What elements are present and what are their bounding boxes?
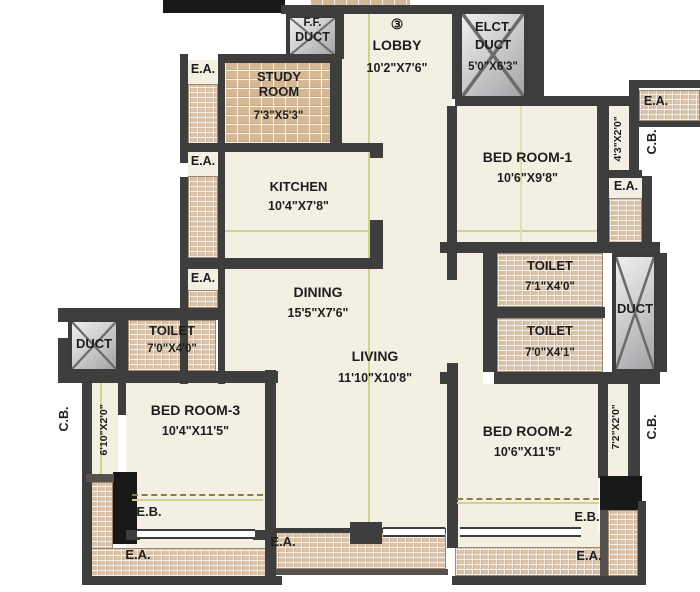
toilet-right-top-label: TOILET	[497, 259, 603, 274]
ledge-top-right-dims: 4'3"X2'0"	[613, 109, 625, 169]
wall-segment	[440, 242, 660, 253]
wall-segment	[276, 569, 448, 575]
dashed-line	[132, 494, 263, 496]
ea-label: E.A.	[611, 179, 641, 193]
wall-segment	[58, 308, 218, 320]
eb-label: E.B.	[128, 505, 170, 520]
duct-right-label: DUCT	[606, 302, 664, 317]
bed-room-2-label: BED ROOM-2	[457, 424, 598, 440]
study-room-label: STUDY ROOM	[240, 70, 318, 99]
dining-label: DINING	[248, 285, 388, 301]
grid-line-bed1	[457, 230, 598, 232]
ea-label: E.A.	[641, 94, 671, 108]
cb-label: C.B.	[645, 120, 659, 164]
grid-line-vertical-center	[368, 13, 370, 528]
wall-segment	[330, 54, 342, 144]
ea-label: E.A.	[566, 549, 612, 564]
toilet-right-bottom-label: TOILET	[497, 324, 603, 339]
wall-segment	[163, 0, 285, 13]
wall-segment	[629, 80, 639, 178]
toilet-left-dims: 7'0"X4'0"	[128, 343, 216, 356]
wall-segment	[281, 5, 544, 14]
cb-label: C.B.	[57, 397, 71, 441]
toilet-left-label: TOILET	[128, 324, 216, 339]
toilet-right-top-dims: 7'1"X4'0"	[497, 281, 603, 294]
wall-segment	[350, 522, 382, 544]
ff-duct-label-line1: F.F.	[286, 17, 339, 30]
kitchen-label: KITCHEN	[225, 180, 372, 195]
passage-floor	[380, 115, 447, 275]
wall-segment	[638, 501, 646, 585]
bed-room-1-dims: 10'6"X9'8"	[457, 171, 598, 185]
unit-number: ③	[342, 17, 452, 33]
ledge-left-dims: 6'10"X2'0"	[99, 400, 111, 460]
wall-segment	[218, 54, 342, 63]
wall-segment	[182, 258, 376, 269]
ea-label: E.A.	[188, 154, 218, 168]
window	[460, 527, 581, 537]
wall-segment	[528, 9, 544, 102]
bed-room-2-dims: 10'6"X11'5"	[457, 445, 598, 459]
wall-segment	[452, 576, 642, 585]
dashed-line	[457, 498, 599, 500]
window	[383, 527, 445, 537]
bed-room-1-label: BED ROOM-1	[457, 150, 598, 166]
ea-strip3-tiles	[188, 290, 218, 308]
ea-label: E.A.	[188, 62, 218, 76]
wall-segment	[182, 143, 382, 152]
elct-duct-label-line1: ELCT.	[458, 20, 528, 35]
toilet-right-bottom-dims: 7'0"X4'1"	[497, 347, 603, 360]
living-dims: 11'10"X10'8"	[300, 371, 450, 385]
floor-plan: ③ LOBBY 10'2"X7'6" F.F. DUCT ELCT. DUCT …	[0, 0, 700, 592]
wall-segment	[447, 106, 457, 280]
ea-strip2-tiles	[188, 176, 218, 258]
kitchen-dims: 10'4"X7'8"	[225, 199, 372, 213]
wall-segment	[632, 80, 700, 88]
ff-duct-label-line2: DUCT	[278, 30, 347, 44]
elct-duct-label-line2: DUCT	[458, 38, 528, 53]
cb-label: C.B.	[645, 405, 659, 449]
study-room-dims: 7'3"X5'3"	[225, 110, 332, 123]
wall-segment	[605, 170, 642, 178]
wall-segment	[118, 381, 126, 415]
ea-label: E.A.	[188, 271, 218, 285]
wall-segment	[600, 476, 642, 510]
wall-segment	[483, 307, 605, 318]
ea-label: E.A.	[260, 535, 306, 550]
duct-left-label: DUCT	[62, 337, 126, 352]
ea-label: E.A.	[112, 548, 164, 563]
wall-opening	[180, 163, 188, 177]
living-floor	[276, 383, 447, 532]
lobby-dims: 10'2"X7'6"	[342, 61, 452, 75]
lobby-label: LOBBY	[342, 38, 452, 54]
wall-segment	[370, 143, 383, 158]
wall-segment	[82, 576, 282, 585]
wall-segment	[628, 380, 640, 478]
elct-duct-dims: 5'0"X6'3"	[455, 61, 531, 74]
wall-segment	[86, 474, 114, 482]
bed-room-3-dims: 10'4"X11'5"	[126, 424, 265, 438]
grid-line-kitchen	[225, 230, 372, 232]
wall-segment	[455, 96, 639, 106]
grid-line	[457, 502, 599, 504]
ledge-bottom-right-dims: 7'2"X2'0"	[611, 397, 623, 457]
grid-line	[132, 499, 263, 501]
wall-segment	[82, 381, 92, 585]
bed-room-3-label: BED ROOM-3	[126, 403, 265, 419]
wall-segment	[218, 54, 225, 384]
wall-segment	[598, 384, 608, 478]
balcony-right-vertical-tiles	[608, 510, 638, 576]
ea-strip1-tiles	[188, 84, 218, 144]
dining-dims: 15'5"X7'6"	[248, 306, 388, 320]
wall-opening	[58, 322, 68, 338]
eb-label: E.B.	[564, 510, 610, 525]
window	[137, 529, 255, 539]
living-label: LIVING	[300, 349, 450, 365]
